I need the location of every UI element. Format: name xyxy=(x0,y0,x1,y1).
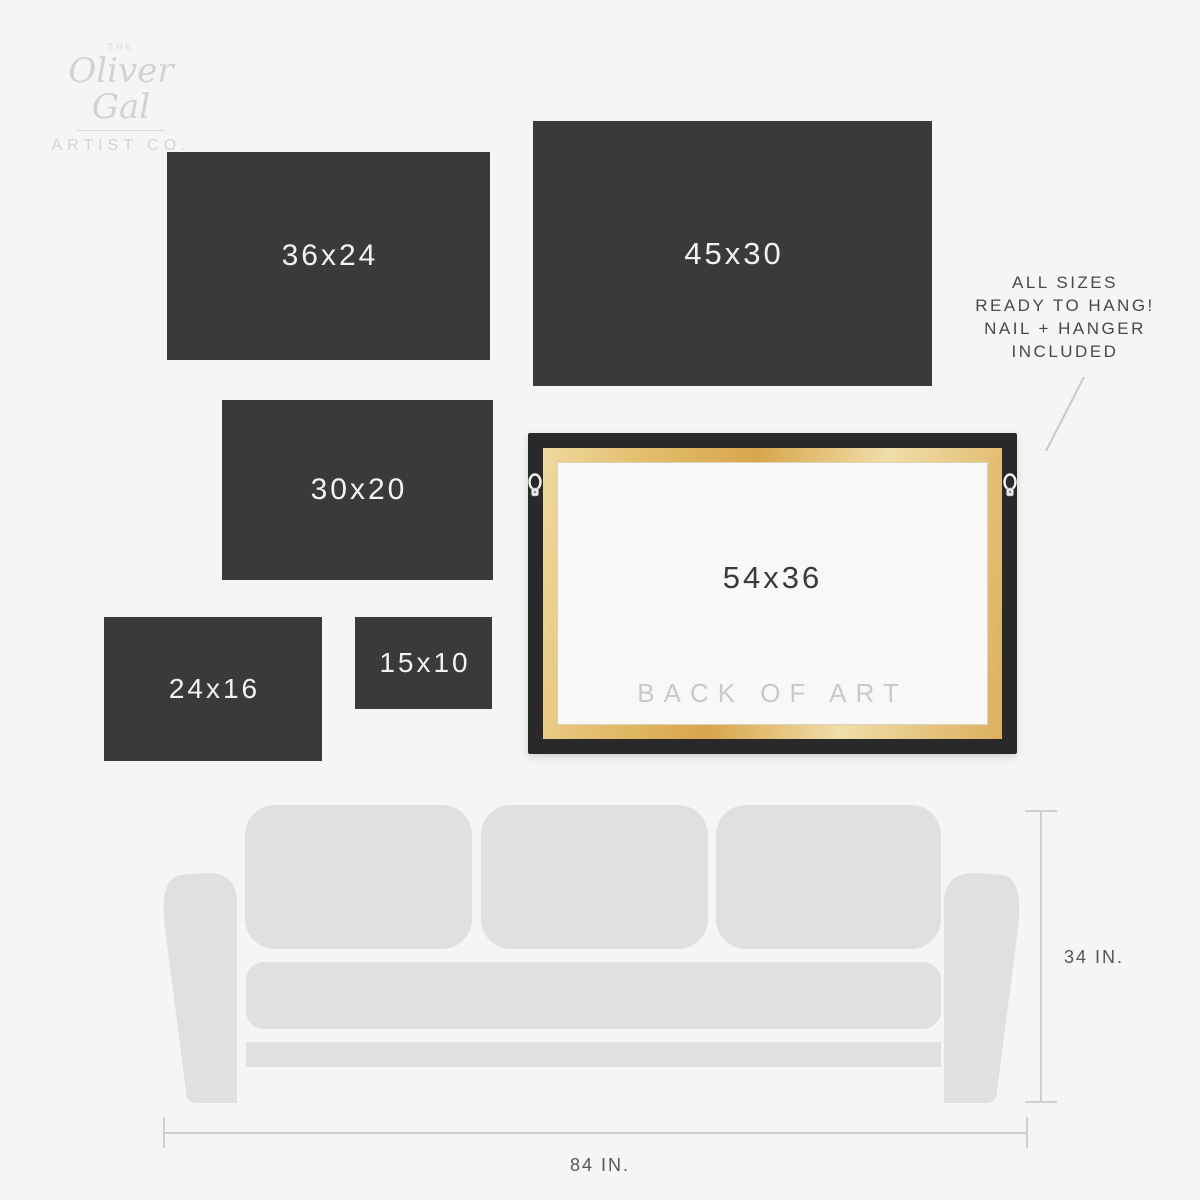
size-panel-24x16: 24x16 xyxy=(104,617,322,761)
height-measure-line xyxy=(1040,811,1042,1102)
back-of-art-label: BACK OF ART xyxy=(557,678,988,709)
note-line-2: READY TO HANG! xyxy=(958,294,1172,317)
brand-logo: THE Oliver Gal ARTIST CO. xyxy=(38,42,204,155)
width-measure-cap-right xyxy=(1026,1117,1028,1148)
size-label-45x30: 45x30 xyxy=(681,236,783,272)
canvas-back: 54x36 BACK OF ART xyxy=(557,462,988,725)
note-line-1: ALL SIZES xyxy=(958,271,1172,294)
d-ring-hanger-icon xyxy=(526,473,544,501)
d-ring-hanger-icon xyxy=(1001,473,1019,501)
size-panel-30x20: 30x20 xyxy=(222,400,493,580)
couch-height-label: 34 IN. xyxy=(1064,947,1124,968)
couch-back-cushion xyxy=(245,805,472,949)
couch-back-cushion xyxy=(481,805,708,949)
size-panel-45x30: 45x30 xyxy=(533,121,932,386)
frame-back-of-art: 54x36 BACK OF ART xyxy=(528,433,1017,754)
width-measure-cap-left xyxy=(163,1117,165,1148)
size-guide-canvas: THE Oliver Gal ARTIST CO. 36x24 45x30 30… xyxy=(0,0,1200,1200)
couch-back-cushion xyxy=(716,805,941,949)
size-label-54x36: 54x36 xyxy=(557,560,988,596)
couch-left-armrest xyxy=(164,873,237,1103)
size-label-36x24: 36x24 xyxy=(279,239,379,273)
couch-seat-cushion xyxy=(246,962,941,1029)
couch-width-label: 84 IN. xyxy=(545,1155,655,1176)
ready-to-hang-note: ALL SIZES READY TO HANG! NAIL + HANGER I… xyxy=(958,271,1172,363)
note-line-4: INCLUDED xyxy=(958,340,1172,363)
size-label-30x20: 30x20 xyxy=(308,473,408,507)
size-panel-15x10: 15x10 xyxy=(355,617,492,709)
logo-divider xyxy=(77,130,165,131)
width-measure-line xyxy=(163,1132,1028,1134)
height-measure-cap-bottom xyxy=(1025,1101,1057,1103)
size-panel-36x24: 36x24 xyxy=(167,152,490,360)
note-line-3: NAIL + HANGER xyxy=(958,317,1172,340)
height-measure-cap-top xyxy=(1025,810,1057,812)
size-label-24x16: 24x16 xyxy=(166,673,260,705)
size-label-15x10: 15x10 xyxy=(376,647,470,679)
logo-brand-name: Oliver Gal xyxy=(38,53,204,125)
couch-right-armrest xyxy=(944,873,1019,1103)
note-pointer-line xyxy=(1046,377,1084,451)
couch-base-rail xyxy=(246,1042,941,1067)
